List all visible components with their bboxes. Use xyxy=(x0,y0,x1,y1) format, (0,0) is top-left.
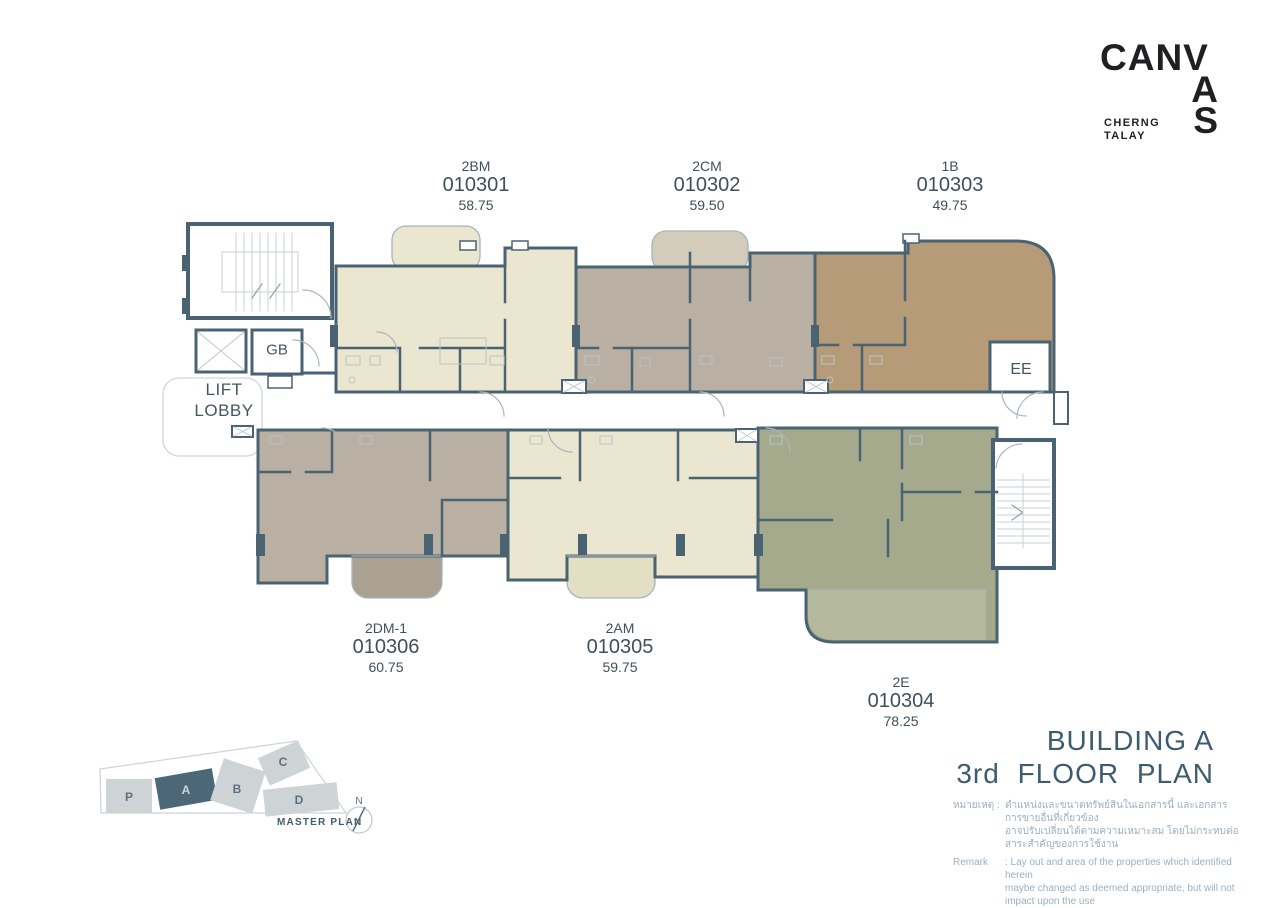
unit-number: 010304 xyxy=(868,691,935,712)
remark-thai-row1: หมายเหตุ : ตำแหน่งและขนาดทรัพย์สินในเอกส… xyxy=(953,799,1239,825)
unit-area: 59.50 xyxy=(674,197,741,213)
unit-type: 2E xyxy=(868,674,935,690)
unit-type: 2CM xyxy=(674,158,741,174)
page-title: BUILDING A 3rd FLOOR PLAN xyxy=(956,724,1214,790)
master-building-d-label: D xyxy=(295,793,304,807)
unit-area: 78.25 xyxy=(868,713,935,729)
unit-label-2bm: 2BM 010301 58.75 xyxy=(443,158,510,213)
unit-label-2cm: 2CM 010302 59.50 xyxy=(674,158,741,213)
unit-area: 49.75 xyxy=(917,197,984,213)
master-building-c-label: C xyxy=(279,755,288,769)
remark-en-row1: Remark : Lay out and area of the propert… xyxy=(953,856,1239,882)
remark-thai-row2: อาจปรับเปลี่ยนได้ตามความเหมาะสม โดยไม่กร… xyxy=(953,825,1239,851)
unit-2bm-footprint xyxy=(336,248,576,392)
remark-thai-line1: ตำแหน่งและขนาดทรัพย์สินในเอกสารนี้ และเอ… xyxy=(1005,799,1239,825)
unit-number: 010305 xyxy=(587,637,654,658)
unit-label-2dm1: 2DM-1 010306 60.75 xyxy=(353,620,420,675)
unit-area: 60.75 xyxy=(353,659,420,675)
unit-type: 2AM xyxy=(587,620,654,636)
ee-label: EE xyxy=(1010,361,1031,379)
remark-en-line2: maybe changed as deemed appropriate, but… xyxy=(1005,882,1239,908)
gb-label: GB xyxy=(266,342,288,359)
remark-en-row2: maybe changed as deemed appropriate, but… xyxy=(953,882,1239,908)
page-title-line2: 3rd FLOOR PLAN xyxy=(956,757,1214,790)
remark-thai-label: หมายเหตุ : xyxy=(953,799,1005,825)
unit-number: 010302 xyxy=(674,175,741,196)
brand-tagline-line1: CHERNG xyxy=(1104,117,1160,130)
master-building-a-label: A xyxy=(182,783,191,797)
remark-en-label: Remark xyxy=(953,856,1005,882)
unit-area: 59.75 xyxy=(587,659,654,675)
brand-tagline: CHERNG TALAY xyxy=(1104,117,1160,143)
north-label: N xyxy=(355,796,362,807)
unit-type: 1B xyxy=(917,158,984,174)
unit-type: 2BM xyxy=(443,158,510,174)
unit-label-1b: 1B 010303 49.75 xyxy=(917,158,984,213)
unit-type: 2DM-1 xyxy=(353,620,420,636)
unit-label-2e: 2E 010304 78.25 xyxy=(868,674,935,729)
unit-label-2am: 2AM 010305 59.75 xyxy=(587,620,654,675)
remark-en-line1: : Lay out and area of the properties whi… xyxy=(1005,856,1239,882)
unit-number: 010306 xyxy=(353,637,420,658)
master-building-b-label: B xyxy=(233,782,242,796)
page-title-line1: BUILDING A xyxy=(956,724,1214,757)
brand-tagline-line2: TALAY xyxy=(1104,130,1160,143)
balcony-2e xyxy=(808,590,986,640)
right-shaft xyxy=(1054,392,1068,424)
floor-plan xyxy=(163,224,1068,642)
lift-lobby-label: LIFT LOBBY xyxy=(176,379,272,421)
master-plan-title: MASTER PLAN xyxy=(277,817,362,828)
unit-number: 010301 xyxy=(443,175,510,196)
balcony-2cm xyxy=(652,231,748,271)
unit-area: 58.75 xyxy=(443,197,510,213)
unit-2am-footprint xyxy=(508,430,758,580)
remark-thai-line2: อาจปรับเปลี่ยนได้ตามความเหมาะสม โดยไม่กร… xyxy=(1005,825,1239,851)
unit-2cm-footprint xyxy=(576,253,815,392)
master-building-p-label: P xyxy=(125,790,133,804)
unit-number: 010303 xyxy=(917,175,984,196)
remark-block: หมายเหตุ : ตำแหน่งและขนาดทรัพย์สินในเอกส… xyxy=(953,799,1239,908)
